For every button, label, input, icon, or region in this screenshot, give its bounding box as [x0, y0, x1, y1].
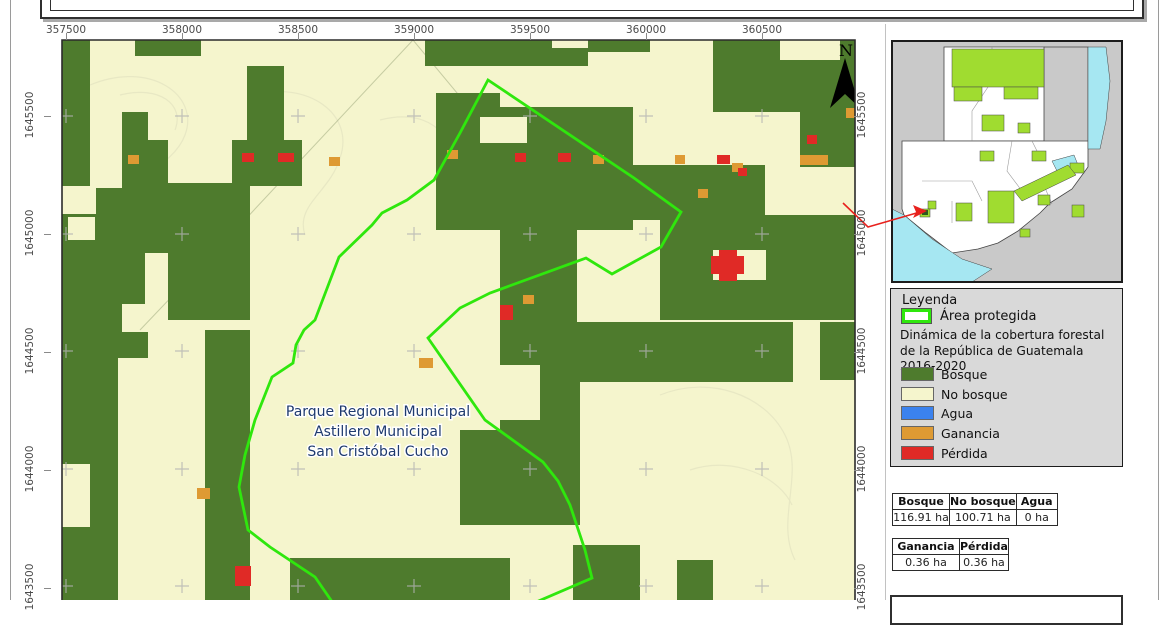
y-axis-label: 1644000: [24, 439, 36, 499]
x-axis-tick: [530, 33, 531, 40]
place-label: Parque Regional Municipal: [286, 404, 470, 420]
protected-area-patch: [988, 191, 1014, 223]
x-axis-tick: [298, 33, 299, 40]
legend-item: Bosque: [891, 367, 1122, 383]
legend-item: Ganancia: [891, 426, 1122, 442]
protected-area-patch: [980, 151, 994, 161]
legend-panel: Leyenda Área protegida Dinámica de la co…: [890, 288, 1123, 467]
protected-area-patch: [954, 87, 982, 101]
protected-area-patch: [1038, 195, 1050, 205]
perdida-pixel: [235, 566, 251, 586]
no-bosque-patch: [552, 40, 588, 48]
place-label: Astillero Municipal: [314, 424, 442, 440]
legend-title: Leyenda: [902, 293, 957, 308]
ganancia-pixel: [128, 155, 139, 164]
y-axis-tick: [854, 588, 861, 589]
bosque-patch: [247, 66, 284, 144]
ganancia-pixel: [675, 155, 685, 164]
ganancia-swatch: [901, 426, 934, 440]
north-label: N: [839, 41, 853, 60]
y-axis-tick: [854, 352, 861, 353]
no-bosque-patch: [480, 117, 527, 143]
protected-area-patch: [982, 115, 1004, 131]
bosque-patch: [820, 322, 855, 380]
perdida-pixel: [717, 155, 730, 164]
y-axis-label: 1644500: [856, 321, 868, 381]
y-axis-tick: [44, 470, 51, 471]
bosque-patch: [543, 322, 793, 382]
perdida-pixel: [719, 250, 737, 281]
y-axis-tick: [44, 234, 51, 235]
protected-area-patch: [928, 201, 936, 209]
x-axis-tick: [182, 33, 183, 40]
y-axis-label: 1645000: [856, 203, 868, 263]
ganancia-pixel: [523, 295, 534, 304]
legend-item: Agua: [891, 406, 1122, 422]
t1-header-bosque: Bosque: [893, 494, 950, 510]
x-axis-tick: [66, 33, 67, 40]
perdida-pixel: [807, 135, 817, 144]
t2-value-ganancia: 0.36 ha: [893, 555, 960, 571]
perdida-pixel: [278, 153, 294, 162]
ganancia-pixel: [197, 488, 210, 499]
t1-value-no-bosque: 100.71 ha: [950, 510, 1017, 526]
ganancia-pixel: [698, 189, 708, 198]
y-axis-tick: [44, 116, 51, 117]
legend-item: No bosque: [891, 387, 1122, 403]
place-label: San Cristóbal Cucho: [307, 444, 448, 460]
no-bosque-patch: [500, 66, 560, 107]
perdida-pixel: [738, 168, 747, 176]
protected-area-patch: [1020, 229, 1030, 237]
change-stats-table: Ganancia Pérdida 0.36 ha 0.36 ha: [892, 538, 1009, 571]
no-bosque-swatch: [901, 387, 934, 401]
no-bosque-patch: [68, 217, 95, 240]
y-axis-label: 1643500: [856, 557, 868, 617]
x-axis-tick: [414, 33, 415, 40]
t1-header-no-bosque: No bosque: [950, 494, 1017, 510]
protected-area-label: Área protegida: [940, 309, 1037, 324]
t1-value-agua: 0 ha: [1016, 510, 1057, 526]
agua-swatch: [901, 406, 934, 420]
perdida-pixel: [500, 305, 513, 320]
area-stats-table: Bosque No bosque Agua 116.91 ha 100.71 h…: [892, 493, 1058, 526]
bosque-patch: [290, 558, 510, 600]
y-axis-tick: [44, 352, 51, 353]
bosque-swatch: [901, 367, 934, 381]
y-axis-label: 1644000: [856, 439, 868, 499]
perdida-pixel: [242, 153, 254, 162]
ganancia-pixel: [329, 157, 340, 166]
y-axis-tick: [854, 470, 861, 471]
t2-header-perdida: Pérdida: [960, 539, 1009, 555]
ganancia-pixel: [800, 155, 828, 165]
no-bosque-patch: [252, 540, 264, 600]
x-axis-tick: [646, 33, 647, 40]
y-axis-label: 1643500: [24, 557, 36, 617]
y-axis-tick: [854, 234, 861, 235]
protected-area-patch: [1072, 205, 1084, 217]
t2-value-perdida: 0.36 ha: [960, 555, 1009, 571]
protected-area-patch: [1018, 123, 1030, 133]
no-bosque-patch: [713, 112, 800, 158]
y-axis-label: 1644500: [24, 321, 36, 381]
ganancia-pixel: [419, 358, 433, 368]
inset-map[interactable]: [892, 41, 1122, 282]
t1-value-bosque: 116.91 ha: [893, 510, 950, 526]
y-axis-tick: [854, 116, 861, 117]
t1-header-agua: Agua: [1016, 494, 1057, 510]
bosque-patch: [135, 40, 201, 56]
map-layers: Parque Regional MunicipalAstillero Munic…: [59, 40, 860, 600]
x-axis-tick: [762, 33, 763, 40]
bosque-patch: [573, 545, 640, 600]
protected-area-patch: [956, 203, 972, 221]
bosque-patch: [168, 227, 250, 320]
no-bosque-patch: [265, 558, 275, 600]
y-axis-label: 1645500: [856, 85, 868, 145]
no-bosque-patch: [485, 365, 540, 420]
bosque-patch: [232, 140, 302, 186]
perdida-pixel: [558, 153, 571, 162]
protected-area-patch: [1004, 87, 1038, 99]
protected-area-swatch: [902, 309, 931, 323]
t2-header-ganancia: Ganancia: [893, 539, 960, 555]
y-axis-tick: [44, 588, 51, 589]
bosque-patch: [677, 560, 713, 600]
legend-item: Pérdida: [891, 446, 1122, 462]
y-axis-label: 1645500: [24, 85, 36, 145]
protected-area-patch: [952, 49, 1044, 87]
perdida-swatch: [901, 446, 934, 460]
perdida-pixel: [515, 153, 526, 162]
y-axis-label: 1645000: [24, 203, 36, 263]
protected-area-patch: [1032, 151, 1046, 161]
no-bosque-patch: [780, 40, 840, 60]
